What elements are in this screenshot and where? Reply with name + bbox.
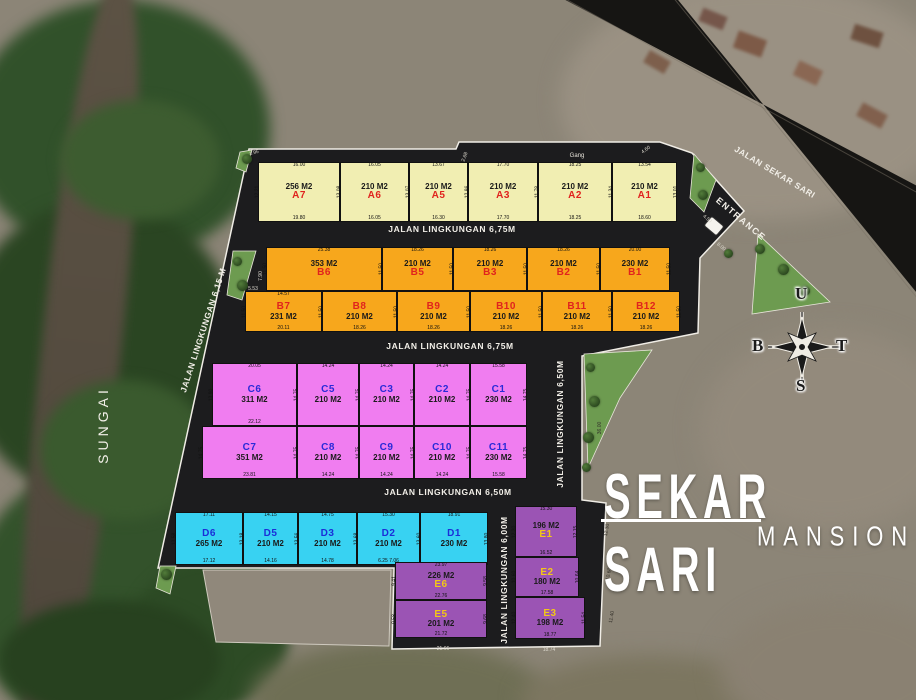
lot-id: C3 — [380, 385, 394, 396]
dim-left: 13.68 — [354, 532, 359, 545]
lot-id: B9 — [427, 302, 441, 313]
dim-right: 9.68 — [484, 614, 489, 624]
dim-top: 15.58 — [492, 364, 505, 369]
lot-area: 210 M2 — [346, 313, 373, 321]
dim-left: 14.75 — [356, 446, 361, 459]
lot-E2[interactable]: E2180 M217.5810.6010.64 — [515, 557, 579, 597]
lot-id: D3 — [321, 529, 335, 540]
tree-icon — [233, 257, 242, 266]
lot-area: 231 M2 — [270, 313, 297, 321]
dim-top: 18.26 — [411, 248, 424, 253]
dim-bottom: 18.77 — [544, 633, 557, 638]
lot-id: D5 — [264, 529, 278, 540]
lot-B10[interactable]: B10210 M218.2611.50 — [470, 291, 542, 332]
lot-B2[interactable]: 210 M2B218.2611.50 — [527, 247, 600, 291]
dim-bottom: 18.26 — [571, 326, 584, 331]
dim-left: 14.75 — [411, 388, 416, 401]
lot-A1[interactable]: 210 M2A113.5418.6011.3413.01 — [612, 162, 677, 222]
lot-B5[interactable]: 210 M2B518.2611.50 — [382, 247, 453, 291]
tree-icon — [161, 569, 172, 580]
misc-dimension: 5.53 — [248, 286, 258, 292]
road-label: JALAN LINGKUNGAN 6,50M — [384, 487, 512, 497]
lot-C2[interactable]: C2210 M214.2414.75 — [414, 363, 470, 426]
dim-top: 18.91 — [448, 513, 461, 518]
lot-C8[interactable]: C8210 M214.2414.75 — [297, 426, 359, 479]
lot-id: B10 — [496, 302, 516, 313]
lot-A6[interactable]: 210 M2A616.0516.0513.08 — [340, 162, 409, 222]
lot-id: D6 — [202, 529, 216, 540]
lot-A2[interactable]: 210 M2A218.2518.2511.78 — [538, 162, 612, 222]
lot-area: 210 M2 — [420, 313, 447, 321]
lot-id: C5 — [321, 385, 335, 396]
dim-bottom: 16.05 — [368, 216, 381, 221]
lot-area: 210 M2 — [429, 396, 456, 404]
site-plan-map: 256 M2A716.0019.8012.21210 M2A616.0516.0… — [0, 0, 916, 700]
dim-left: 11.50 — [539, 305, 544, 317]
dim-left: 11.50 — [609, 305, 614, 317]
compass-north-label: U — [795, 284, 807, 304]
dim-bottom: 14.24 — [380, 473, 393, 478]
tree-icon — [583, 432, 594, 443]
dim-left: 14.75 — [294, 446, 299, 459]
lot-id: C6 — [248, 385, 262, 396]
lot-B8[interactable]: B8210 M218.2611.50 — [322, 291, 397, 332]
dim-top: 20.05 — [248, 364, 261, 369]
dim-top: 17.70 — [497, 163, 510, 168]
river-label: SUNGAI — [95, 386, 111, 464]
lot-area: 210 M2 — [633, 313, 660, 321]
dim-bottom: 22.76 — [435, 594, 448, 599]
dim-left: 11.50 — [394, 305, 399, 317]
lot-C11[interactable]: C11230 M215.5814.7514.75 — [470, 426, 527, 479]
lot-E3[interactable]: E3198 M218.7712.4011.54 — [515, 597, 585, 639]
dim-left: 10.60 — [512, 571, 517, 584]
lot-D5[interactable]: D5210 M214.1514.1613.18 — [243, 512, 298, 565]
lot-id: B12 — [636, 302, 656, 313]
lot-area: 210 M2 — [373, 454, 400, 462]
dim-right: 10.64 — [576, 571, 581, 584]
compass-south-label: S — [796, 376, 805, 396]
lot-id: B11 — [567, 302, 586, 313]
dim-top: 25.38 — [318, 248, 331, 253]
tree-icon — [778, 264, 789, 275]
lot-A7[interactable]: 256 M2A716.0019.8012.21 — [258, 162, 340, 222]
dim-top: 14.24 — [322, 364, 335, 369]
lot-B3[interactable]: 210 M2B318.2611.50 — [453, 247, 527, 291]
lot-area: 210 M2 — [429, 454, 456, 462]
road-label: JALAN LINGKUNGAN 6,75M — [386, 341, 514, 351]
dim-right: 13.80 — [485, 532, 490, 545]
road-label: JALAN LINGKUNGAN 6,00M — [499, 516, 509, 644]
dim-right: 11.54 — [582, 612, 587, 624]
title-underline — [601, 519, 761, 522]
lot-id: D1 — [447, 529, 461, 540]
alley-label: Gang — [570, 153, 585, 159]
dim-left: 14.75 — [467, 388, 472, 401]
lot-D6[interactable]: D6265 M217.1117.1213.58 — [175, 512, 243, 565]
lot-id: E6 — [434, 580, 447, 591]
lot-area: 180 M2 — [534, 578, 561, 586]
lot-id: E1 — [539, 530, 552, 541]
dim-left: 11.50 — [524, 263, 529, 275]
dim-top: 15.30 — [540, 507, 553, 512]
dim-top: 14.24 — [436, 364, 449, 369]
dim-top: 14.57 — [277, 292, 290, 297]
dim-top: 18.26 — [484, 248, 497, 253]
misc-dimension: 18.74 — [543, 647, 556, 653]
road-label: JALAN LINGKUNGAN 6,50M — [555, 360, 565, 488]
lot-area: 210 M2 — [257, 540, 284, 548]
dim-left: 14.75 — [467, 446, 472, 459]
misc-dimension: 7.90 — [258, 271, 264, 281]
existing-land-wedge — [203, 570, 391, 646]
dim-left: 11.50 — [597, 263, 602, 275]
lot-id: C10 — [432, 443, 452, 454]
lot-id: A2 — [568, 191, 582, 202]
lot-E5[interactable]: E5201 M221.729.589.68 — [395, 600, 487, 638]
dim-left: 13.07 — [406, 186, 411, 199]
lot-C7[interactable]: C7351 M223.8114.75 — [202, 426, 297, 479]
lot-id: B1 — [628, 268, 642, 279]
lot-area: 201 M2 — [428, 620, 455, 628]
lot-id: A6 — [368, 191, 382, 202]
lot-B6[interactable]: 353 M2B625.3811.50 — [266, 247, 382, 291]
dim-bottom: 14.78 — [321, 559, 334, 564]
lot-C6[interactable]: C6311 M220.0522.1213.90 — [212, 363, 297, 426]
lot-A3[interactable]: 210 M2A317.7017.7012.86 — [468, 162, 538, 222]
lot-area: 230 M2 — [441, 540, 468, 548]
dim-left: 12.30 — [512, 525, 517, 538]
dim-bottom: 18.26 — [500, 326, 513, 331]
dim-bottom: 17.70 — [497, 216, 510, 221]
dim-left: 11.78 — [535, 186, 540, 198]
dim-left: 14.75 — [199, 446, 204, 459]
dim-left: 13.56 — [295, 532, 300, 545]
lot-id: B8 — [353, 302, 367, 313]
lot-area: 230 M2 — [485, 396, 512, 404]
lot-id: C8 — [321, 443, 335, 454]
dim-top: 20.00 — [629, 248, 642, 253]
dim-top: 15.30 — [382, 513, 395, 518]
dim-top: 18.26 — [557, 248, 570, 253]
dim-bottom: 18.25 — [569, 216, 582, 221]
tree-icon — [696, 163, 705, 172]
lot-area: 198 M2 — [537, 619, 564, 627]
lot-id: A1 — [638, 191, 652, 202]
dim-left: 9.58 — [392, 614, 397, 624]
dim-bottom: 16.30 — [432, 216, 445, 221]
dim-top: 14.75 — [321, 513, 334, 518]
dim-right: 9.58 — [484, 576, 489, 586]
dim-left: 11.50 — [242, 305, 247, 317]
dim-bottom: 22.12 — [248, 420, 261, 425]
dim-left: 14.75 — [294, 388, 299, 401]
dim-left: 9.41 — [392, 576, 397, 586]
lot-id: B6 — [317, 268, 331, 279]
dim-left: 11.50 — [263, 263, 268, 275]
lot-B7[interactable]: B7231 M214.5720.1111.50 — [245, 291, 322, 332]
dim-top: 17.11 — [203, 513, 215, 518]
dim-left: 11.50 — [379, 263, 384, 275]
lot-D3[interactable]: D3210 M214.7514.7813.56 — [298, 512, 357, 565]
lot-id: B5 — [411, 268, 425, 279]
lot-area: 210 M2 — [375, 540, 402, 548]
dim-bottom: 18.26 — [427, 326, 440, 331]
lot-id: C1 — [492, 385, 506, 396]
dim-bottom: 19.80 — [293, 216, 306, 221]
dim-bottom: 21.72 — [435, 632, 448, 637]
lot-id: A7 — [292, 191, 306, 202]
lot-E1[interactable]: 196 M2E115.3016.5212.3012.15 — [515, 506, 577, 557]
dim-left: 12.86 — [465, 186, 470, 199]
dim-top: 18.25 — [569, 163, 582, 168]
dim-bottom: 14.24 — [436, 473, 449, 478]
lot-area: 230 M2 — [485, 454, 512, 462]
lot-area: 265 M2 — [196, 540, 223, 548]
lot-id: B2 — [557, 268, 571, 279]
misc-dimension: 36.00 — [597, 422, 603, 435]
dim-right: 14.75 — [524, 388, 529, 401]
dim-bottom: 18.26 — [640, 326, 653, 331]
project-subtitle: MANSION — [757, 521, 915, 553]
lot-A5[interactable]: 210 M2A513.6716.3013.07 — [409, 162, 468, 222]
lot-C3[interactable]: C3210 M214.2414.75 — [359, 363, 414, 426]
lot-area: 351 M2 — [236, 454, 263, 462]
lot-id: B7 — [277, 302, 291, 313]
dim-right: 11.50 — [667, 263, 672, 275]
lot-id: C2 — [435, 385, 449, 396]
dim-top: 13.67 — [432, 163, 445, 168]
dim-left: 13.18 — [240, 532, 245, 545]
tree-icon — [582, 463, 591, 472]
lot-id: A3 — [496, 191, 510, 202]
dim-right: 14.75 — [524, 446, 529, 459]
lot-E6[interactable]: 226 M2E623.9722.769.419.58 — [395, 562, 487, 600]
dim-bottom: 20.11 — [277, 326, 289, 331]
dim-bottom: 14.24 — [322, 473, 335, 478]
dim-left: 11.50 — [319, 305, 324, 317]
dim-bottom: 18.26 — [353, 326, 366, 331]
dim-top: 16.05 — [368, 163, 381, 168]
dim-left: 13.90 — [209, 388, 214, 401]
dim-left: 11.34 — [609, 186, 614, 198]
lot-B1[interactable]: 230 M2B120.0011.5011.50 — [600, 247, 670, 291]
lot-id: D2 — [382, 529, 396, 540]
dim-bottom: 15.58 — [492, 473, 505, 478]
dim-right: 13.01 — [674, 186, 679, 199]
dim-top: 13.54 — [638, 163, 651, 168]
lot-area: 210 M2 — [373, 396, 400, 404]
tree-icon — [237, 280, 248, 291]
lot-id: B3 — [483, 268, 497, 279]
lot-id: A5 — [432, 191, 446, 202]
lot-area: 210 M2 — [564, 313, 591, 321]
tree-icon — [755, 244, 765, 254]
dim-top: 16.00 — [293, 163, 306, 168]
compass-rose — [768, 312, 840, 382]
lot-id: C9 — [380, 443, 394, 454]
compass-west-label: B — [752, 336, 763, 356]
lot-D2[interactable]: D2210 M215.306.25 7.0613.68 — [357, 512, 420, 565]
dim-left: 11.50 — [450, 263, 455, 275]
dim-top: 23.97 — [435, 563, 448, 568]
dim-bottom: 23.81 — [243, 473, 256, 478]
dim-left: 12.40 — [512, 612, 517, 625]
lot-area: 210 M2 — [314, 540, 341, 548]
dim-left: 11.50 — [467, 305, 472, 317]
lot-C1[interactable]: C1230 M215.5814.7514.75 — [470, 363, 527, 426]
dim-left: 14.75 — [356, 388, 361, 401]
dim-left: 13.58 — [172, 532, 177, 545]
lot-id: C11 — [489, 443, 508, 454]
lot-id: C7 — [243, 443, 257, 454]
dim-bottom: 14.16 — [264, 559, 277, 564]
misc-dimension: 21.66 — [437, 646, 450, 652]
lot-B12[interactable]: B12210 M218.2611.5011.50 — [612, 291, 680, 332]
lot-area: 311 M2 — [241, 396, 267, 404]
lot-C5[interactable]: C5210 M214.2414.75 — [297, 363, 359, 426]
dim-bottom: 17.58 — [541, 591, 554, 596]
compass-east-label: T — [836, 336, 847, 356]
lot-area: 210 M2 — [493, 313, 520, 321]
tree-icon — [589, 396, 600, 407]
lot-B9[interactable]: B9210 M218.2611.50 — [397, 291, 470, 332]
lot-D1[interactable]: D1230 M218.9113.6013.80 — [420, 512, 488, 565]
dim-top: 14.15 — [264, 513, 277, 518]
tree-icon — [698, 190, 708, 200]
dim-bottom: 18.60 — [638, 216, 651, 221]
dim-left: 13.08 — [337, 186, 342, 199]
road-label: JALAN LINGKUNGAN 6,75M — [388, 224, 516, 234]
lot-C10[interactable]: C10210 M214.2414.75 — [414, 426, 470, 479]
dim-bottom: 16.52 — [540, 551, 553, 556]
dim-left: 14.75 — [411, 446, 416, 459]
lot-area: 210 M2 — [315, 454, 342, 462]
tree-icon — [586, 363, 595, 372]
dim-bottom: 17.12 — [203, 559, 216, 564]
lot-area: 210 M2 — [315, 396, 342, 404]
lot-C9[interactable]: C9210 M214.2414.75 — [359, 426, 414, 479]
dim-top: 14.24 — [380, 364, 393, 369]
dim-left: 12.21 — [255, 186, 260, 199]
dim-left: 13.60 — [417, 532, 422, 545]
dim-right: 11.50 — [677, 305, 682, 317]
dim-right: 12.15 — [574, 525, 579, 538]
lot-B11[interactable]: B11210 M218.2611.50 — [542, 291, 612, 332]
